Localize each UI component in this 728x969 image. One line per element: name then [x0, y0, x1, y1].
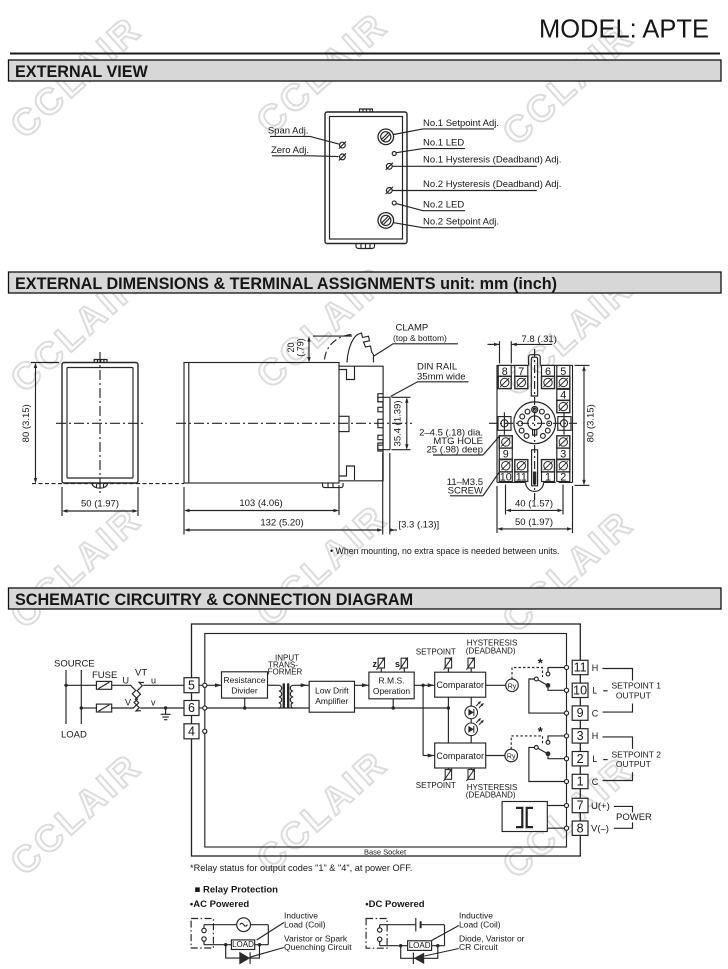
- svg-text:C: C: [592, 777, 599, 787]
- svg-text:1: 1: [545, 472, 551, 484]
- svg-text:R.M.S.: R.M.S.: [379, 675, 405, 685]
- svg-text:Comparator: Comparator: [436, 680, 484, 690]
- svg-text:50 (1.97): 50 (1.97): [81, 499, 119, 510]
- svg-text:SOURCE: SOURCE: [54, 659, 95, 670]
- svg-text:v: v: [151, 698, 156, 708]
- svg-text:LOAD: LOAD: [232, 940, 254, 949]
- svg-text:H: H: [592, 731, 599, 741]
- svg-text:U: U: [123, 676, 130, 686]
- svg-text:20: 20: [286, 342, 296, 352]
- svg-text:SETPOINT 1: SETPOINT 1: [612, 681, 662, 691]
- svg-text:5: 5: [188, 678, 195, 692]
- svg-text:7.8 (.31): 7.8 (.31): [522, 334, 557, 345]
- svg-text:2: 2: [577, 752, 584, 766]
- svg-text:•DC Powered: •DC Powered: [365, 899, 424, 910]
- svg-text:FORMER: FORMER: [268, 668, 303, 677]
- svg-text:3: 3: [560, 449, 566, 461]
- svg-text:No.2 Hysteresis (Deadband) Adj: No.2 Hysteresis (Deadband) Adj.: [423, 179, 561, 190]
- svg-text:Amplifier: Amplifier: [315, 696, 348, 706]
- svg-text:Divider: Divider: [231, 686, 258, 696]
- svg-text:80 (3.15): 80 (3.15): [21, 404, 32, 442]
- svg-text:35.4 (1.39): 35.4 (1.39): [393, 401, 404, 447]
- svg-text:11: 11: [574, 661, 587, 675]
- svg-text:u: u: [151, 676, 156, 686]
- svg-text:Load (Coil): Load (Coil): [459, 919, 501, 929]
- svg-text:EXTERNAL DIMENSIONS & TERMINAL: EXTERNAL DIMENSIONS & TERMINAL ASSIGNMEN…: [15, 275, 557, 293]
- svg-text:Comparator: Comparator: [436, 751, 484, 761]
- svg-text:Base Socket: Base Socket: [364, 848, 407, 857]
- svg-text:No.2 LED: No.2 LED: [423, 200, 464, 211]
- svg-text:No.1 Hysteresis (Deadband) Adj: No.1 Hysteresis (Deadband) Adj.: [423, 155, 561, 166]
- svg-text:SETPOINT: SETPOINT: [416, 781, 456, 790]
- svg-text:■ Relay Protection: ■ Relay Protection: [195, 885, 279, 896]
- svg-text:25 (.98) deep: 25 (.98) deep: [426, 444, 483, 455]
- svg-text:LOAD: LOAD: [409, 941, 431, 950]
- svg-text:FUSE: FUSE: [92, 670, 117, 681]
- svg-text:L: L: [592, 686, 597, 696]
- svg-text:4: 4: [188, 724, 195, 738]
- svg-text:LOAD: LOAD: [61, 730, 87, 741]
- svg-text:• When mounting, no extra spac: • When mounting, no extra space is neede…: [330, 546, 560, 556]
- svg-text:9: 9: [503, 449, 509, 461]
- svg-text:No.2 Setpoint Adj.: No.2 Setpoint Adj.: [423, 217, 499, 228]
- svg-text:H: H: [592, 663, 599, 673]
- svg-text:CLAMP: CLAMP: [396, 323, 429, 334]
- svg-text:50 (1.97): 50 (1.97): [515, 517, 553, 528]
- svg-text:OUTPUT: OUTPUT: [616, 759, 651, 769]
- svg-text:7: 7: [577, 799, 584, 813]
- svg-text:No.1 LED: No.1 LED: [423, 138, 464, 149]
- svg-text:103 (4.06): 103 (4.06): [239, 498, 282, 509]
- svg-text:10: 10: [500, 472, 512, 484]
- svg-text:80 (3.15): 80 (3.15): [586, 404, 597, 442]
- svg-text:Low Drift: Low Drift: [315, 686, 349, 696]
- svg-text:(.79): (.79): [296, 338, 306, 357]
- svg-text:POWER: POWER: [616, 812, 652, 823]
- svg-text:(top & bottom): (top & bottom): [393, 333, 447, 343]
- svg-text:*Relay status for output codes: *Relay status for output codes "1" & "4"…: [190, 863, 412, 873]
- svg-text:(DEADBAND): (DEADBAND): [466, 791, 516, 800]
- svg-text:L: L: [592, 754, 597, 764]
- svg-text:VT: VT: [135, 668, 147, 679]
- svg-text:s: s: [395, 659, 400, 669]
- svg-text:35mm wide: 35mm wide: [417, 372, 466, 383]
- svg-text:(DEADBAND): (DEADBAND): [466, 646, 516, 655]
- svg-text:Load (Coil): Load (Coil): [284, 919, 326, 929]
- svg-text:132 (5.20): 132 (5.20): [260, 518, 303, 529]
- svg-text:[3.3 (.13)]: [3.3 (.13)]: [399, 520, 440, 531]
- svg-text:Operation: Operation: [373, 686, 411, 696]
- svg-text:6: 6: [188, 701, 195, 715]
- svg-text:SCREW: SCREW: [448, 485, 483, 496]
- svg-text:Resistance: Resistance: [223, 675, 265, 685]
- svg-text:z: z: [373, 659, 378, 669]
- svg-text:SETPOINT 2: SETPOINT 2: [612, 749, 662, 759]
- svg-text:3: 3: [577, 729, 584, 743]
- svg-text:No.1 Setpoint Adj.: No.1 Setpoint Adj.: [423, 118, 499, 129]
- svg-text:9: 9: [577, 706, 584, 720]
- svg-text:Zero Adj.: Zero Adj.: [271, 145, 309, 156]
- svg-text:1: 1: [577, 775, 584, 789]
- svg-text:Ry: Ry: [508, 683, 517, 690]
- svg-text:Ry: Ry: [507, 754, 516, 761]
- svg-text:EXTERNAL VIEW: EXTERNAL VIEW: [15, 63, 149, 81]
- svg-text:Span Adj.: Span Adj.: [268, 126, 309, 137]
- svg-text:Quenching Circuit: Quenching Circuit: [284, 942, 352, 952]
- svg-text:10: 10: [573, 683, 587, 697]
- svg-text:OUTPUT: OUTPUT: [616, 690, 651, 700]
- svg-text:SCHEMATIC CIRCUITRY & CONNECTI: SCHEMATIC CIRCUITRY & CONNECTION DIAGRAM: [15, 591, 413, 609]
- svg-text:U(+): U(+): [591, 801, 610, 812]
- svg-text:MODEL: APTE: MODEL: APTE: [539, 16, 709, 44]
- svg-text:8: 8: [577, 821, 584, 835]
- svg-text:CR Circuit: CR Circuit: [459, 942, 498, 952]
- svg-text:11: 11: [516, 472, 527, 484]
- svg-text:SETPOINT: SETPOINT: [416, 648, 456, 657]
- svg-text:V(–): V(–): [591, 824, 609, 835]
- svg-text:40 (1.57): 40 (1.57): [515, 499, 553, 510]
- svg-text:2: 2: [560, 472, 566, 484]
- svg-text:C: C: [592, 708, 599, 718]
- svg-text:V: V: [125, 698, 131, 708]
- svg-text:•AC Powered: •AC Powered: [190, 899, 249, 910]
